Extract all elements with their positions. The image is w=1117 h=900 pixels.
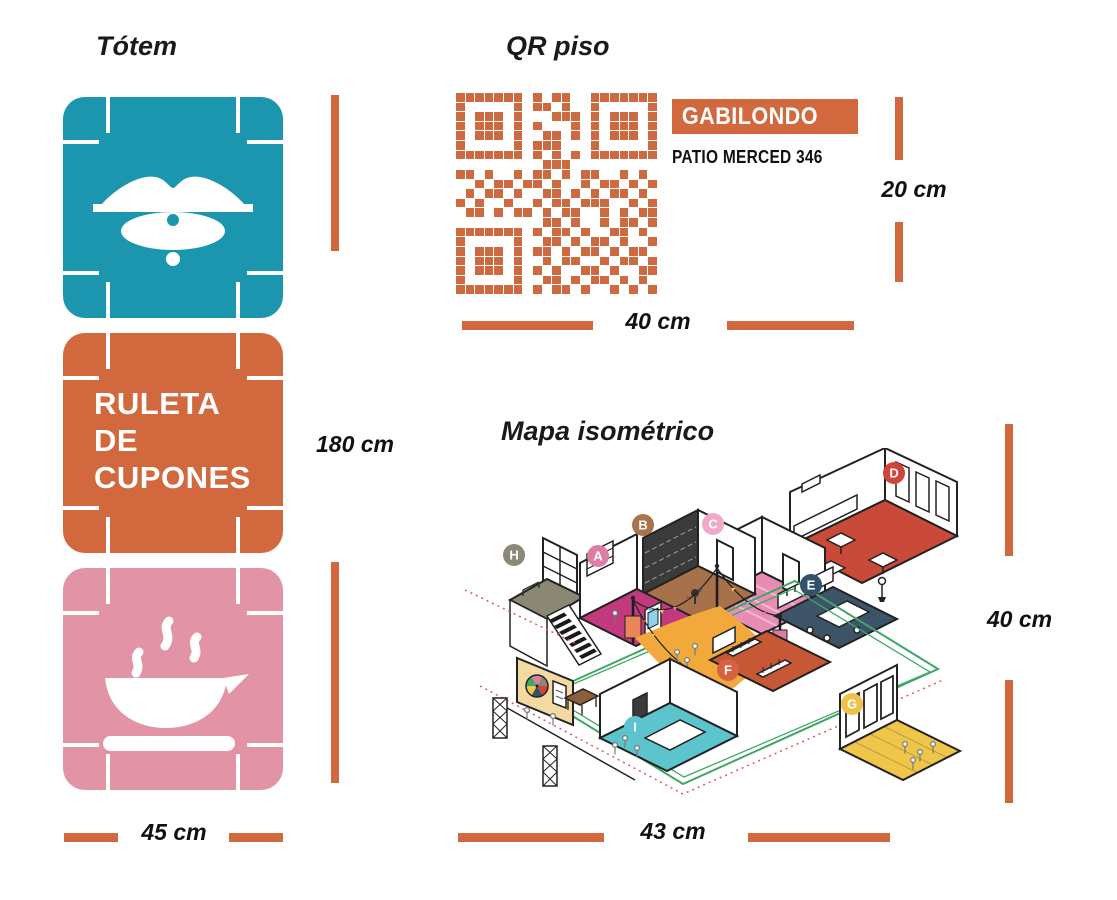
qr-module xyxy=(543,122,552,131)
qr-module xyxy=(485,199,494,208)
panel-slit xyxy=(247,611,283,615)
qr-module xyxy=(629,160,638,169)
totem-panel-ruleta: RULETA DE CUPONES xyxy=(63,333,283,553)
panel-slit xyxy=(236,333,240,369)
map-room-g xyxy=(840,665,960,780)
qr-module xyxy=(610,266,619,275)
panel-slit xyxy=(106,568,110,604)
qr-module xyxy=(504,141,513,150)
qr-module xyxy=(591,141,600,150)
qr-module xyxy=(562,93,571,102)
qr-module xyxy=(639,170,648,179)
qr-module xyxy=(648,247,657,256)
qr-module xyxy=(581,103,590,112)
map-width-dim-line-right xyxy=(748,833,890,842)
qr-module xyxy=(485,103,494,112)
qr-module xyxy=(456,218,465,227)
qr-module xyxy=(504,170,513,179)
qr-module xyxy=(571,112,580,121)
qr-module xyxy=(485,93,494,102)
qr-module xyxy=(466,257,475,266)
qr-module xyxy=(648,237,657,246)
qr-module xyxy=(620,112,629,121)
qr-module xyxy=(562,103,571,112)
qr-module xyxy=(523,199,532,208)
qr-module xyxy=(648,131,657,140)
qr-module xyxy=(504,93,513,102)
qr-module xyxy=(523,112,532,121)
qr-module xyxy=(600,189,609,198)
qr-module xyxy=(494,189,503,198)
qr-module xyxy=(562,247,571,256)
svg-text:C: C xyxy=(708,517,718,532)
qr-module xyxy=(533,103,542,112)
qr-module xyxy=(514,160,523,169)
qr-module xyxy=(562,276,571,285)
qr-module xyxy=(620,103,629,112)
qr-module xyxy=(600,180,609,189)
panel-slit xyxy=(236,97,240,133)
qr-module xyxy=(610,199,619,208)
qr-module xyxy=(620,141,629,150)
totem-width-dim-line-right xyxy=(229,833,283,842)
qr-module xyxy=(648,93,657,102)
qr-module xyxy=(456,257,465,266)
qr-module xyxy=(629,189,638,198)
qr-module xyxy=(533,276,542,285)
qr-module xyxy=(620,93,629,102)
map-width-dim-line-left xyxy=(458,833,604,842)
qr-module xyxy=(639,276,648,285)
qr-module xyxy=(629,141,638,150)
qr-module xyxy=(581,122,590,131)
store-name-label: GABILONDO xyxy=(672,103,818,131)
qr-module xyxy=(600,266,609,275)
qr-module xyxy=(494,112,503,121)
qr-module xyxy=(581,257,590,266)
qr-module xyxy=(523,189,532,198)
qr-module xyxy=(514,93,523,102)
panel-slit xyxy=(247,140,283,144)
qr-module xyxy=(571,93,580,102)
coffee-cup-icon xyxy=(93,610,253,755)
qr-module xyxy=(620,170,629,179)
qr-module xyxy=(523,122,532,131)
qr-module xyxy=(581,170,590,179)
map-width-dim-label: 43 cm xyxy=(612,818,734,845)
map-roulette-wall xyxy=(517,658,598,726)
qr-module xyxy=(639,141,648,150)
qr-module xyxy=(552,218,561,227)
qr-module xyxy=(610,103,619,112)
qr-module xyxy=(639,103,648,112)
qr-module xyxy=(543,170,552,179)
qr-module xyxy=(494,131,503,140)
qr-module xyxy=(533,170,542,179)
qr-module xyxy=(571,237,580,246)
qr-module xyxy=(639,180,648,189)
qr-module xyxy=(494,170,503,179)
qr-module xyxy=(562,237,571,246)
qr-module xyxy=(514,218,523,227)
qr-module xyxy=(591,285,600,294)
qr-module xyxy=(485,151,494,160)
qr-code-grid xyxy=(456,93,657,294)
qr-module xyxy=(552,180,561,189)
panel-slit xyxy=(106,754,110,790)
qr-module xyxy=(533,199,542,208)
qr-module xyxy=(581,93,590,102)
qr-module xyxy=(639,218,648,227)
qr-module xyxy=(504,208,513,217)
qr-height-dim-line-top xyxy=(895,97,903,160)
panel-slit xyxy=(236,754,240,790)
qr-module xyxy=(523,170,532,179)
qr-module xyxy=(475,160,484,169)
qr-module xyxy=(494,208,503,217)
qr-module xyxy=(562,257,571,266)
qr-module xyxy=(456,122,465,131)
qr-module xyxy=(571,160,580,169)
qr-module xyxy=(504,237,513,246)
qr-module xyxy=(620,257,629,266)
qr-module xyxy=(571,285,580,294)
qr-module xyxy=(581,131,590,140)
svg-text:G: G xyxy=(847,697,857,712)
qr-module xyxy=(523,180,532,189)
map-marker-d: D xyxy=(883,462,905,484)
roulette-wheel-icon xyxy=(526,675,548,697)
qr-module xyxy=(581,141,590,150)
qr-module xyxy=(504,112,513,121)
totem-width-dim-line-left xyxy=(64,833,118,842)
qr-module xyxy=(648,257,657,266)
qr-module xyxy=(466,276,475,285)
qr-module xyxy=(552,122,561,131)
qr-module xyxy=(523,141,532,150)
qr-module xyxy=(562,141,571,150)
qr-module xyxy=(610,208,619,217)
qr-module xyxy=(610,189,619,198)
qr-module xyxy=(610,218,619,227)
qr-module xyxy=(629,170,638,179)
qr-module xyxy=(552,151,561,160)
totem-title: Tótem xyxy=(96,31,177,62)
qr-module xyxy=(629,122,638,131)
qr-module xyxy=(485,160,494,169)
qr-module xyxy=(552,199,561,208)
qr-module xyxy=(620,199,629,208)
qr-module xyxy=(504,189,513,198)
qr-module xyxy=(485,285,494,294)
qr-module xyxy=(629,199,638,208)
ruleta-de-cupones-label: RULETA DE CUPONES xyxy=(94,385,251,496)
qr-module xyxy=(552,228,561,237)
qr-module xyxy=(485,276,494,285)
qr-module xyxy=(591,208,600,217)
qr-module xyxy=(543,247,552,256)
qr-module xyxy=(610,131,619,140)
qr-module xyxy=(543,180,552,189)
map-marker-h: H xyxy=(503,544,525,566)
qr-module xyxy=(610,112,619,121)
qr-module xyxy=(543,237,552,246)
svg-text:A: A xyxy=(593,549,603,564)
qr-module xyxy=(514,122,523,131)
qr-module xyxy=(600,285,609,294)
qr-module xyxy=(571,131,580,140)
qr-module xyxy=(639,266,648,275)
qr-module xyxy=(552,112,561,121)
qr-module xyxy=(629,180,638,189)
qr-module xyxy=(648,103,657,112)
qr-module xyxy=(475,285,484,294)
qr-module xyxy=(648,218,657,227)
panel-slit xyxy=(247,743,283,747)
qr-module xyxy=(475,257,484,266)
qr-module xyxy=(514,228,523,237)
qr-module xyxy=(543,257,552,266)
qr-module xyxy=(533,141,542,150)
qr-module xyxy=(600,93,609,102)
qr-module xyxy=(648,170,657,179)
qr-module xyxy=(610,141,619,150)
qr-width-dim-label: 40 cm xyxy=(598,308,718,335)
qr-module xyxy=(620,218,629,227)
qr-module xyxy=(552,257,561,266)
qr-module xyxy=(591,276,600,285)
qr-module xyxy=(610,180,619,189)
map-height-dim-line-bottom xyxy=(1005,680,1013,803)
qr-module xyxy=(600,151,609,160)
qr-module xyxy=(639,247,648,256)
qr-module xyxy=(543,218,552,227)
qr-module xyxy=(514,180,523,189)
qr-module xyxy=(494,247,503,256)
qr-module xyxy=(629,131,638,140)
qr-module xyxy=(581,151,590,160)
qr-module xyxy=(456,93,465,102)
totem-height-dim-line-bottom xyxy=(331,562,339,783)
qr-module xyxy=(456,180,465,189)
qr-module xyxy=(562,199,571,208)
qr-module xyxy=(562,151,571,160)
qr-module xyxy=(456,199,465,208)
qr-module xyxy=(504,285,513,294)
qr-module xyxy=(552,160,561,169)
qr-module xyxy=(514,276,523,285)
qr-module xyxy=(639,151,648,160)
qr-module xyxy=(494,237,503,246)
qr-module xyxy=(466,266,475,275)
qr-module xyxy=(514,103,523,112)
qr-module xyxy=(591,266,600,275)
store-address-label: PATIO MERCED 346 xyxy=(672,147,823,168)
qr-module xyxy=(629,247,638,256)
qr-module xyxy=(485,228,494,237)
qr-module xyxy=(494,103,503,112)
qr-module xyxy=(466,237,475,246)
qr-module xyxy=(485,218,494,227)
qr-module xyxy=(639,208,648,217)
qr-module xyxy=(591,112,600,121)
qr-module xyxy=(639,131,648,140)
qr-module xyxy=(494,257,503,266)
qr-module xyxy=(543,276,552,285)
qr-module xyxy=(648,285,657,294)
panel-slit xyxy=(63,376,99,380)
qr-module xyxy=(591,247,600,256)
qr-module xyxy=(514,131,523,140)
qr-module xyxy=(562,208,571,217)
qr-module xyxy=(543,266,552,275)
qr-module xyxy=(504,257,513,266)
qr-module xyxy=(648,180,657,189)
qr-module xyxy=(475,247,484,256)
qr-module xyxy=(514,112,523,121)
qr-module xyxy=(533,151,542,160)
qr-module xyxy=(543,103,552,112)
qr-module xyxy=(591,151,600,160)
panel-slit xyxy=(247,506,283,510)
qr-module xyxy=(523,160,532,169)
qr-module xyxy=(466,131,475,140)
qr-module xyxy=(591,228,600,237)
qr-module xyxy=(504,151,513,160)
qr-module xyxy=(456,170,465,179)
qr-module xyxy=(620,247,629,256)
panel-slit xyxy=(63,743,99,747)
qr-module xyxy=(475,131,484,140)
qr-module xyxy=(620,160,629,169)
qr-module xyxy=(620,151,629,160)
qr-module xyxy=(523,257,532,266)
map-marker-b: B xyxy=(632,514,654,536)
qr-module xyxy=(629,103,638,112)
qr-module xyxy=(562,228,571,237)
qr-module xyxy=(552,170,561,179)
qr-module xyxy=(533,218,542,227)
qr-module xyxy=(639,160,648,169)
panel-slit xyxy=(63,506,99,510)
map-title: Mapa isométrico xyxy=(501,416,714,447)
qr-module xyxy=(610,160,619,169)
qr-module xyxy=(475,170,484,179)
svg-text:F: F xyxy=(724,663,732,678)
qr-module xyxy=(620,237,629,246)
qr-height-dim-line-bottom xyxy=(895,222,903,282)
qr-title: QR piso xyxy=(506,31,610,62)
qr-module xyxy=(639,93,648,102)
qr-module xyxy=(494,160,503,169)
qr-module xyxy=(456,103,465,112)
qr-module xyxy=(552,103,561,112)
qr-module xyxy=(591,199,600,208)
qr-module xyxy=(629,237,638,246)
qr-module xyxy=(523,208,532,217)
qr-module xyxy=(581,180,590,189)
qr-module xyxy=(629,151,638,160)
qr-module xyxy=(562,180,571,189)
qr-module xyxy=(543,208,552,217)
qr-module xyxy=(629,266,638,275)
panel-slit xyxy=(106,333,110,369)
qr-module xyxy=(475,237,484,246)
qr-module xyxy=(543,228,552,237)
qr-module xyxy=(629,208,638,217)
qr-module xyxy=(543,93,552,102)
qr-module xyxy=(466,151,475,160)
qr-module xyxy=(571,189,580,198)
qr-module xyxy=(533,180,542,189)
qr-module xyxy=(562,285,571,294)
qr-module xyxy=(639,189,648,198)
qr-module xyxy=(648,141,657,150)
qr-module xyxy=(648,160,657,169)
qr-module xyxy=(514,170,523,179)
qr-module xyxy=(485,237,494,246)
qr-module xyxy=(466,180,475,189)
qr-module xyxy=(514,237,523,246)
qr-module xyxy=(475,112,484,121)
svg-text:I: I xyxy=(633,720,637,735)
qr-module xyxy=(552,285,561,294)
qr-module xyxy=(456,266,465,275)
qr-module xyxy=(571,208,580,217)
qr-module xyxy=(591,122,600,131)
qr-module xyxy=(581,237,590,246)
qr-module xyxy=(504,247,513,256)
qr-module xyxy=(562,170,571,179)
qr-module xyxy=(485,170,494,179)
qr-module xyxy=(533,112,542,121)
qr-module xyxy=(543,285,552,294)
qr-module xyxy=(620,208,629,217)
qr-module xyxy=(571,170,580,179)
qr-module xyxy=(581,285,590,294)
qr-module xyxy=(456,151,465,160)
qr-module xyxy=(562,189,571,198)
qr-module xyxy=(514,266,523,275)
panel-slit xyxy=(247,376,283,380)
qr-module xyxy=(494,93,503,102)
qr-module xyxy=(523,151,532,160)
qr-module xyxy=(581,247,590,256)
svg-text:D: D xyxy=(889,466,898,481)
qr-module xyxy=(475,180,484,189)
qr-module xyxy=(600,170,609,179)
qr-module xyxy=(475,189,484,198)
qr-module xyxy=(475,141,484,150)
qr-module xyxy=(504,276,513,285)
qr-module xyxy=(514,151,523,160)
qr-module xyxy=(571,228,580,237)
qr-module xyxy=(610,170,619,179)
qr-module xyxy=(600,237,609,246)
map-height-dim-line-top xyxy=(1005,424,1013,556)
qr-module xyxy=(514,141,523,150)
qr-module xyxy=(466,122,475,131)
panel-slit xyxy=(63,271,99,275)
qr-module xyxy=(466,189,475,198)
qr-module xyxy=(610,122,619,131)
qr-module xyxy=(600,276,609,285)
qr-module xyxy=(466,93,475,102)
qr-module xyxy=(456,247,465,256)
qr-module xyxy=(639,257,648,266)
qr-module xyxy=(466,285,475,294)
qr-module xyxy=(610,151,619,160)
